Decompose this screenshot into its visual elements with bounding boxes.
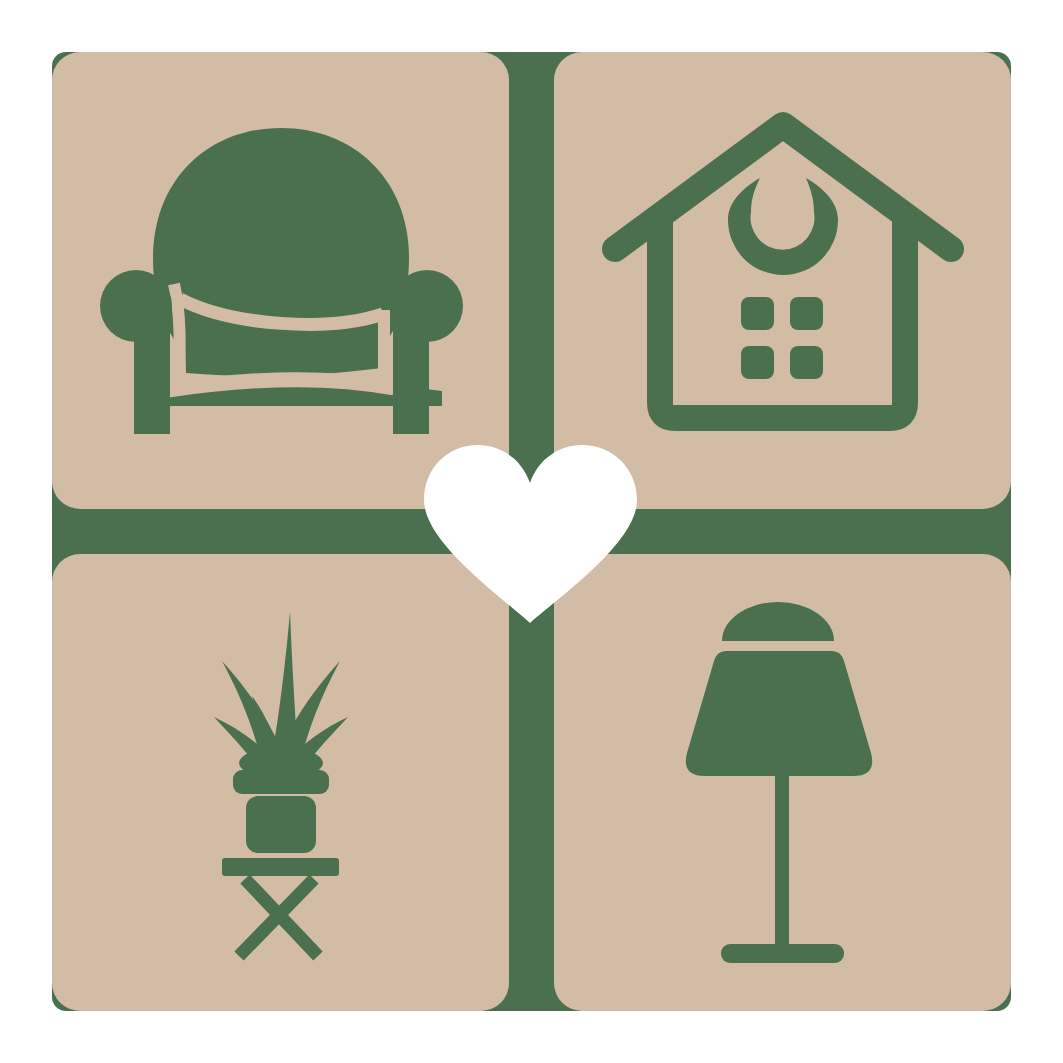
house-window-pane: [741, 297, 774, 330]
lamp-base: [721, 944, 844, 963]
plant-pot-body: [246, 796, 316, 853]
plant-pot-rim: [233, 770, 329, 794]
house-window-pane: [790, 297, 823, 330]
house-window-pane: [790, 346, 823, 379]
logo-canvas: [0, 0, 1063, 1063]
lamp-pole: [775, 776, 789, 948]
stool-top: [222, 858, 339, 876]
lamp-shade: [686, 651, 872, 776]
armchair-leg-left: [134, 306, 170, 434]
logo-image: [0, 0, 1063, 1063]
house-window-pane: [741, 346, 774, 379]
armchair-leg-right: [393, 306, 429, 434]
